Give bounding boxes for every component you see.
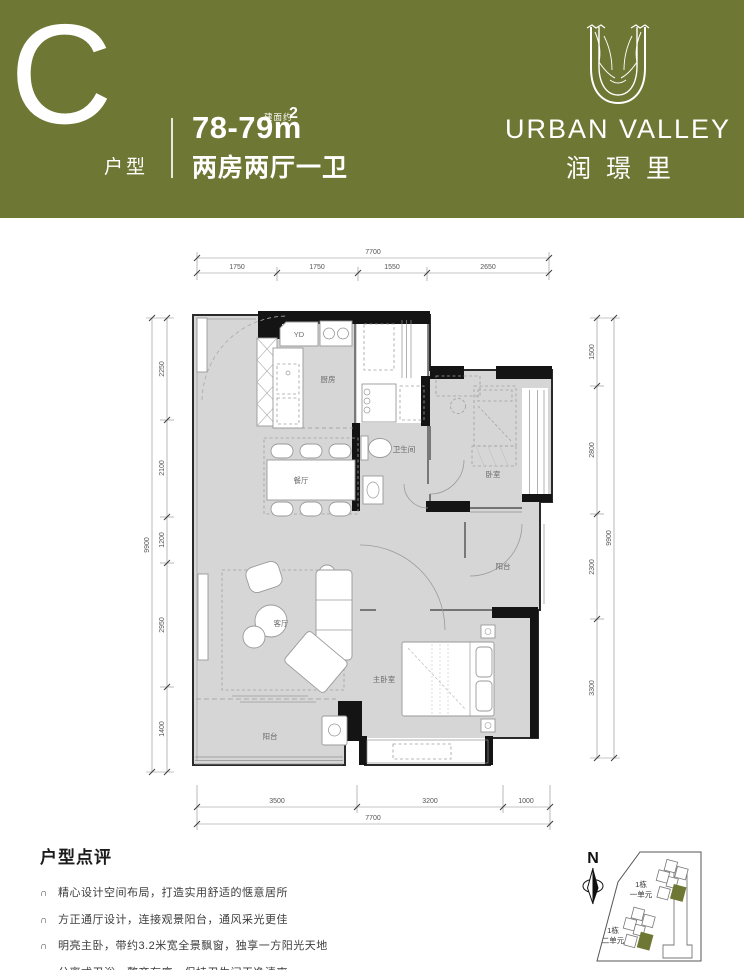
compass-icon bbox=[583, 868, 603, 904]
svg-text:1400: 1400 bbox=[159, 721, 166, 737]
site-map: N 1栋 一单元 bbox=[568, 843, 744, 970]
review-item: ∩ 明亮主卧，带约3.2米宽全景飘窗，独享一方阳光天地 bbox=[40, 937, 560, 953]
review-item-text: 方正通厅设计，连接观景阳台，通风采光更佳 bbox=[58, 911, 288, 927]
svg-text:2650: 2650 bbox=[480, 264, 496, 271]
svg-text:9900: 9900 bbox=[606, 530, 613, 546]
bullet-icon: ∩ bbox=[40, 915, 58, 926]
dining-chair bbox=[329, 502, 351, 516]
svg-text:2950: 2950 bbox=[159, 617, 166, 633]
svg-text:3300: 3300 bbox=[589, 680, 596, 696]
svg-text:1200: 1200 bbox=[159, 532, 166, 548]
review-title: 户型点评 bbox=[40, 843, 560, 868]
svg-text:7700: 7700 bbox=[365, 249, 381, 256]
unit-area-superscript: 2 bbox=[289, 105, 298, 123]
svg-text:9900: 9900 bbox=[144, 537, 151, 553]
brand-logo-u-icon bbox=[582, 22, 654, 108]
dimensions-left: 9900 2250 2100 1200 2950 1400 bbox=[144, 315, 174, 775]
review-item-text: 明亮主卧，带约3.2米宽全景飘窗，独享一方阳光天地 bbox=[58, 937, 328, 953]
room-label-yd: YD bbox=[294, 330, 305, 339]
entry-door-leaf bbox=[197, 318, 207, 372]
nightstand bbox=[481, 719, 495, 732]
review-list: ∩ 精心设计空间布局，打造实用舒适的惬意居所 ∩ 方正通厅设计，连接观景阳台，通… bbox=[40, 884, 560, 970]
coffee-table-small bbox=[243, 626, 265, 648]
room-label-balcony-right: 阳台 bbox=[496, 561, 511, 571]
bath-sink bbox=[363, 476, 383, 504]
dimensions-right: 1500 2800 2300 3300 9900 bbox=[589, 315, 620, 761]
header-banner: C 户型 78-79m 建面约 2 两房两厅一卫 URBAN VALLEY 润璟… bbox=[0, 0, 744, 218]
svg-text:2250: 2250 bbox=[159, 361, 166, 377]
review-section: 户型点评 ∩ 精心设计空间布局，打造实用舒适的惬意居所 ∩ 方正通厅设计，连接观… bbox=[40, 843, 560, 970]
master-bay-window bbox=[365, 738, 490, 765]
brand-name: URBAN VALLEY bbox=[492, 114, 744, 145]
unit-type-label: 户型 bbox=[104, 152, 148, 179]
building-1-label: 1栋 bbox=[635, 879, 647, 889]
unit-layout: 两房两厅一卫 bbox=[192, 148, 348, 184]
bullet-icon: ∩ bbox=[40, 888, 58, 899]
site-map-drawing: N 1栋 一单元 bbox=[568, 843, 744, 970]
svg-text:2800: 2800 bbox=[589, 442, 596, 458]
svg-text:3500: 3500 bbox=[269, 798, 285, 805]
tv-console bbox=[198, 574, 208, 660]
dimensions-bottom: 3500 3200 1000 7700 bbox=[194, 785, 553, 830]
dining-chair bbox=[329, 444, 351, 458]
svg-text:2300: 2300 bbox=[589, 559, 596, 575]
room-label-kitchen: 厨房 bbox=[321, 374, 336, 384]
svg-text:1000: 1000 bbox=[518, 798, 534, 805]
room-label-bath: 卫生间 bbox=[393, 444, 416, 454]
dining-chair bbox=[300, 502, 322, 516]
svg-text:1500: 1500 bbox=[589, 344, 596, 360]
dining-chair bbox=[271, 444, 293, 458]
dining-chair bbox=[300, 444, 322, 458]
review-item: ∩ 分离式卫浴，整齐有序，保持卫生间干净清爽 bbox=[40, 964, 560, 970]
review-item: ∩ 方正通厅设计，连接观景阳台，通风采光更佳 bbox=[40, 911, 560, 927]
svg-text:2100: 2100 bbox=[159, 460, 166, 476]
room-label-balcony-bottom: 阳台 bbox=[263, 731, 278, 741]
building-cluster-2 bbox=[619, 906, 659, 952]
bullet-icon: ∩ bbox=[40, 941, 58, 952]
svg-text:3200: 3200 bbox=[422, 798, 438, 805]
room-label-dining: 餐厅 bbox=[294, 476, 309, 485]
floorplan-drawing: YD 厨房 餐厅 卫生间 卧室 阳台 客厅 主卧室 阳台 7700 1750 bbox=[140, 240, 640, 850]
page: C 户型 78-79m 建面约 2 两房两厅一卫 URBAN VALLEY 润璟… bbox=[0, 0, 744, 970]
room-label-living: 客厅 bbox=[274, 618, 289, 628]
svg-text:1750: 1750 bbox=[309, 264, 325, 271]
dimensions-top: 7700 1750 1750 1550 2650 bbox=[194, 249, 552, 281]
kitchen-counter bbox=[273, 348, 303, 428]
washing-machine bbox=[322, 716, 347, 745]
toilet-tank bbox=[361, 436, 368, 460]
brand-name-cn: 润璟里 bbox=[500, 149, 744, 185]
dining-chair bbox=[271, 502, 293, 516]
north-label: N bbox=[587, 850, 599, 867]
review-item: ∩ 精心设计空间布局，打造实用舒适的惬意居所 bbox=[40, 884, 560, 900]
room-label-master: 主卧室 bbox=[373, 674, 396, 684]
unit-letter: C bbox=[10, 0, 113, 178]
review-item-text: 分离式卫浴，整齐有序，保持卫生间干净清爽 bbox=[58, 964, 288, 970]
building-2-label: 1栋 bbox=[607, 925, 619, 935]
dining-table bbox=[267, 460, 355, 500]
brand-block: URBAN VALLEY 润璟里 bbox=[492, 0, 744, 218]
room-label-bedroom: 卧室 bbox=[486, 469, 501, 479]
review-item-text: 精心设计空间布局，打造实用舒适的惬意居所 bbox=[58, 884, 288, 900]
svg-text:1750: 1750 bbox=[229, 264, 245, 271]
svg-text:7700: 7700 bbox=[365, 815, 381, 822]
dining-furniture bbox=[264, 438, 358, 516]
building-1-sublabel: 一单元 bbox=[630, 889, 653, 899]
stove bbox=[320, 321, 352, 346]
header-divider bbox=[171, 118, 173, 178]
floorplan: YD 厨房 餐厅 卫生间 卧室 阳台 客厅 主卧室 阳台 7700 1750 bbox=[140, 240, 640, 850]
toilet bbox=[369, 439, 392, 458]
svg-text:1550: 1550 bbox=[384, 264, 400, 271]
building-2-sublabel: 二单元 bbox=[602, 935, 625, 945]
nightstand bbox=[481, 625, 495, 638]
